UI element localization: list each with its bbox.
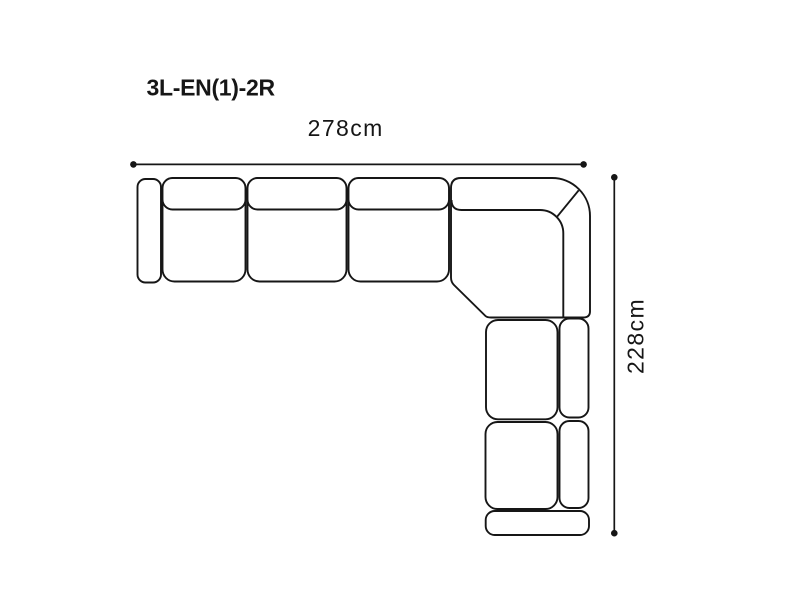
svg-text:278cm: 278cm — [308, 115, 384, 141]
svg-text:228cm: 228cm — [623, 298, 649, 374]
svg-text:3L-EN(1)-2R: 3L-EN(1)-2R — [147, 75, 276, 101]
